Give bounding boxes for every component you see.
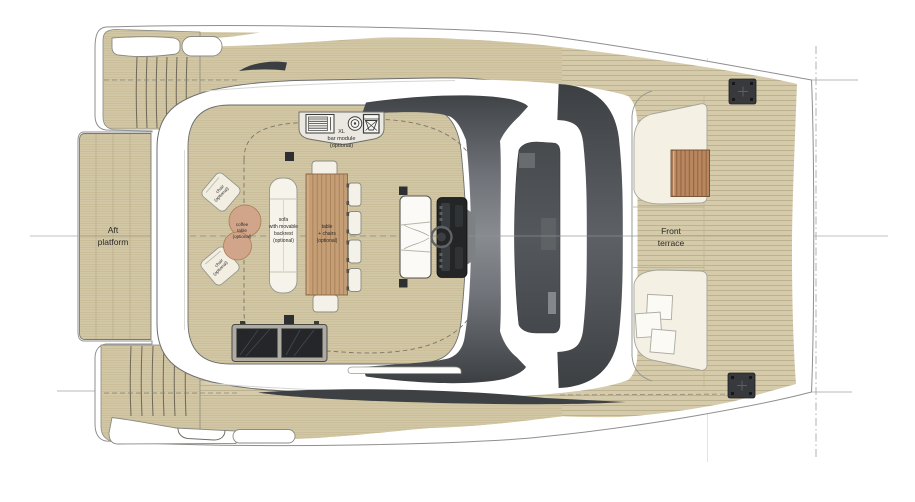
svg-text:Front: Front bbox=[661, 226, 681, 236]
svg-text:(optional): (optional) bbox=[330, 143, 353, 149]
svg-text:Aft: Aft bbox=[108, 225, 119, 235]
svg-text:terrace: terrace bbox=[658, 238, 685, 248]
svg-text:(optional): (optional) bbox=[233, 234, 252, 239]
svg-text:XL: XL bbox=[338, 129, 345, 135]
svg-text:platform: platform bbox=[98, 237, 129, 247]
svg-text:table: table bbox=[322, 224, 333, 230]
svg-text:(optional): (optional) bbox=[317, 238, 338, 244]
svg-text:table: table bbox=[237, 228, 247, 233]
svg-text:(optional): (optional) bbox=[273, 238, 294, 244]
svg-text:with movable: with movable bbox=[269, 224, 298, 230]
svg-text:+ chairs: + chairs bbox=[318, 231, 336, 237]
svg-text:bar module: bar module bbox=[328, 136, 356, 142]
svg-text:coffee: coffee bbox=[236, 222, 249, 227]
svg-text:backrest: backrest bbox=[274, 231, 294, 237]
svg-text:sofa: sofa bbox=[279, 217, 289, 223]
